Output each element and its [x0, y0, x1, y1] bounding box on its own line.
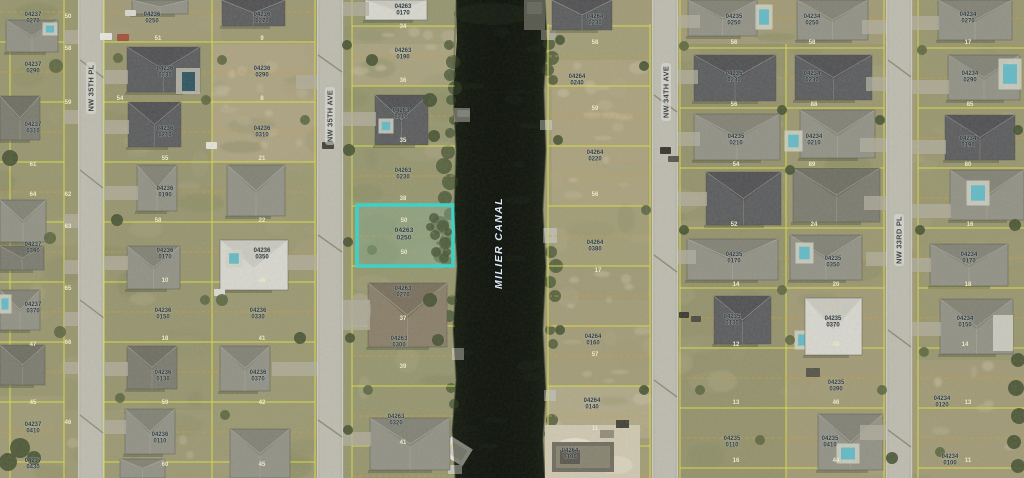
svg-text:042630210: 042630210	[393, 108, 410, 121]
svg-text:36: 36	[400, 78, 407, 84]
svg-text:11: 11	[592, 426, 599, 432]
svg-text:56: 56	[731, 40, 738, 46]
svg-text:042360350: 042360350	[254, 248, 271, 261]
svg-text:34: 34	[400, 24, 407, 30]
svg-text:042350170: 042350170	[726, 252, 743, 265]
svg-text:41: 41	[400, 440, 407, 446]
svg-text:042360370: 042360370	[250, 370, 267, 383]
svg-text:042340190: 042340190	[960, 136, 977, 149]
svg-text:66: 66	[65, 340, 72, 346]
svg-text:52: 52	[731, 222, 738, 228]
svg-text:13: 13	[965, 400, 972, 406]
svg-text:042630230: 042630230	[395, 168, 412, 181]
svg-text:12: 12	[733, 342, 740, 348]
svg-text:18: 18	[965, 282, 972, 288]
svg-text:47: 47	[30, 342, 37, 348]
svg-text:60: 60	[162, 462, 169, 468]
svg-text:NW 35TH PL: NW 35TH PL	[87, 64, 96, 111]
svg-text:13: 13	[733, 400, 740, 406]
svg-text:042370390: 042370390	[25, 242, 42, 255]
svg-text:042350390: 042350390	[828, 380, 845, 393]
svg-text:042340210: 042340210	[806, 134, 823, 147]
svg-text:58: 58	[65, 46, 72, 52]
svg-text:39: 39	[400, 364, 407, 370]
svg-text:65: 65	[65, 286, 72, 292]
svg-text:58: 58	[809, 40, 816, 46]
svg-text:042360110: 042360110	[152, 432, 169, 445]
svg-text:042340230: 042340230	[804, 71, 821, 84]
svg-text:21: 21	[259, 156, 266, 162]
svg-text:56: 56	[592, 192, 599, 198]
svg-text:042360330: 042360330	[250, 308, 267, 321]
svg-text:63: 63	[65, 224, 72, 230]
svg-text:042340270: 042340270	[960, 12, 977, 25]
svg-text:042360210: 042360210	[157, 126, 174, 139]
svg-text:042350210: 042350210	[728, 134, 745, 147]
svg-text:18: 18	[162, 336, 169, 342]
svg-text:14: 14	[733, 282, 740, 288]
svg-text:042630190: 042630190	[395, 48, 412, 61]
svg-text:17: 17	[595, 268, 602, 274]
svg-text:042360290: 042360290	[254, 66, 271, 79]
svg-text:042360170: 042360170	[157, 248, 174, 261]
svg-text:80: 80	[965, 162, 972, 168]
svg-text:48: 48	[833, 342, 840, 348]
svg-text:042360250: 042360250	[144, 12, 161, 25]
svg-text:35: 35	[400, 138, 407, 144]
svg-text:042640160: 042640160	[585, 334, 602, 347]
svg-text:042340170: 042340170	[961, 252, 978, 265]
svg-text:24: 24	[811, 222, 818, 228]
svg-text:10: 10	[162, 278, 169, 284]
svg-text:042370290: 042370290	[25, 62, 42, 75]
svg-text:20: 20	[833, 282, 840, 288]
svg-text:042640230: 042640230	[587, 14, 604, 27]
svg-text:042630320: 042630320	[388, 414, 405, 427]
svg-text:MILIER CANAL: MILIER CANAL	[493, 197, 505, 289]
svg-text:042370410: 042370410	[25, 422, 42, 435]
svg-text:46: 46	[833, 400, 840, 406]
svg-text:042640240: 042640240	[569, 74, 586, 87]
svg-text:042360230: 042360230	[157, 66, 174, 79]
svg-text:042350110: 042350110	[724, 436, 741, 449]
svg-text:58: 58	[592, 40, 599, 46]
svg-text:042640220: 042640220	[587, 150, 604, 163]
svg-text:44: 44	[833, 458, 840, 464]
svg-text:042350350: 042350350	[825, 256, 842, 269]
svg-text:11: 11	[965, 458, 972, 464]
svg-text:59: 59	[162, 400, 169, 406]
svg-text:042630270: 042630270	[395, 286, 412, 299]
svg-text:16: 16	[733, 458, 740, 464]
svg-text:042360130: 042360130	[155, 370, 172, 383]
svg-text:042370430: 042370430	[25, 458, 42, 471]
svg-text:042350230: 042350230	[726, 71, 743, 84]
svg-text:042340150: 042340150	[957, 316, 974, 329]
svg-text:042350410: 042350410	[822, 436, 839, 449]
svg-text:46: 46	[65, 420, 72, 426]
svg-text:16: 16	[967, 222, 974, 228]
svg-text:042640140: 042640140	[584, 398, 601, 411]
svg-text:042360310: 042360310	[254, 126, 271, 139]
svg-text:50: 50	[65, 14, 72, 20]
svg-text:042370370: 042370370	[25, 302, 42, 315]
svg-text:41: 41	[259, 336, 266, 342]
svg-text:042340250: 042340250	[804, 14, 821, 27]
svg-text:042340290: 042340290	[962, 71, 979, 84]
svg-text:NW 34TH AVE: NW 34TH AVE	[662, 66, 671, 118]
svg-text:38: 38	[400, 196, 407, 202]
svg-text:50: 50	[401, 218, 408, 224]
svg-text:042640100: 042640100	[562, 448, 579, 461]
svg-text:22: 22	[259, 218, 266, 224]
svg-text:042370310: 042370310	[25, 122, 42, 135]
svg-text:42: 42	[259, 400, 266, 406]
svg-text:042350370: 042350370	[825, 316, 842, 329]
svg-text:56: 56	[731, 102, 738, 108]
svg-text:042640380: 042640380	[587, 240, 604, 253]
svg-text:042630250: 042630250	[395, 227, 414, 241]
svg-text:042630300: 042630300	[391, 336, 408, 349]
svg-text:042340120: 042340120	[934, 396, 951, 409]
svg-text:042360190: 042360190	[157, 186, 174, 199]
svg-text:14: 14	[962, 342, 969, 348]
svg-text:NW 35TH AVE: NW 35TH AVE	[326, 90, 335, 142]
svg-text:042370270: 042370270	[25, 12, 42, 25]
svg-text:17: 17	[965, 40, 972, 46]
svg-text:89: 89	[809, 162, 816, 168]
svg-text:55: 55	[162, 156, 169, 162]
svg-text:85: 85	[967, 102, 974, 108]
svg-text:62: 62	[65, 192, 72, 198]
svg-text:64: 64	[30, 192, 37, 198]
svg-text:54: 54	[117, 96, 124, 102]
svg-text:50: 50	[401, 250, 408, 256]
svg-text:57: 57	[592, 352, 599, 358]
svg-text:042350250: 042350250	[726, 14, 743, 27]
svg-text:042350130: 042350130	[724, 314, 741, 327]
svg-text:88: 88	[811, 102, 818, 108]
svg-text:042340100: 042340100	[942, 454, 959, 467]
svg-text:042360150: 042360150	[155, 308, 172, 321]
svg-text:51: 51	[155, 36, 162, 42]
svg-text:48: 48	[259, 278, 266, 284]
svg-text:58: 58	[155, 218, 162, 224]
svg-text:61: 61	[30, 162, 37, 168]
svg-text:37: 37	[400, 316, 407, 322]
svg-text:59: 59	[592, 106, 599, 112]
svg-text:NW 33RD PL: NW 33RD PL	[895, 216, 904, 264]
svg-text:042360270: 042360270	[254, 12, 271, 25]
svg-text:45: 45	[259, 462, 266, 468]
svg-text:59: 59	[65, 100, 72, 106]
svg-text:45: 45	[30, 400, 37, 406]
svg-text:042630170: 042630170	[395, 4, 412, 17]
svg-text:54: 54	[733, 162, 740, 168]
